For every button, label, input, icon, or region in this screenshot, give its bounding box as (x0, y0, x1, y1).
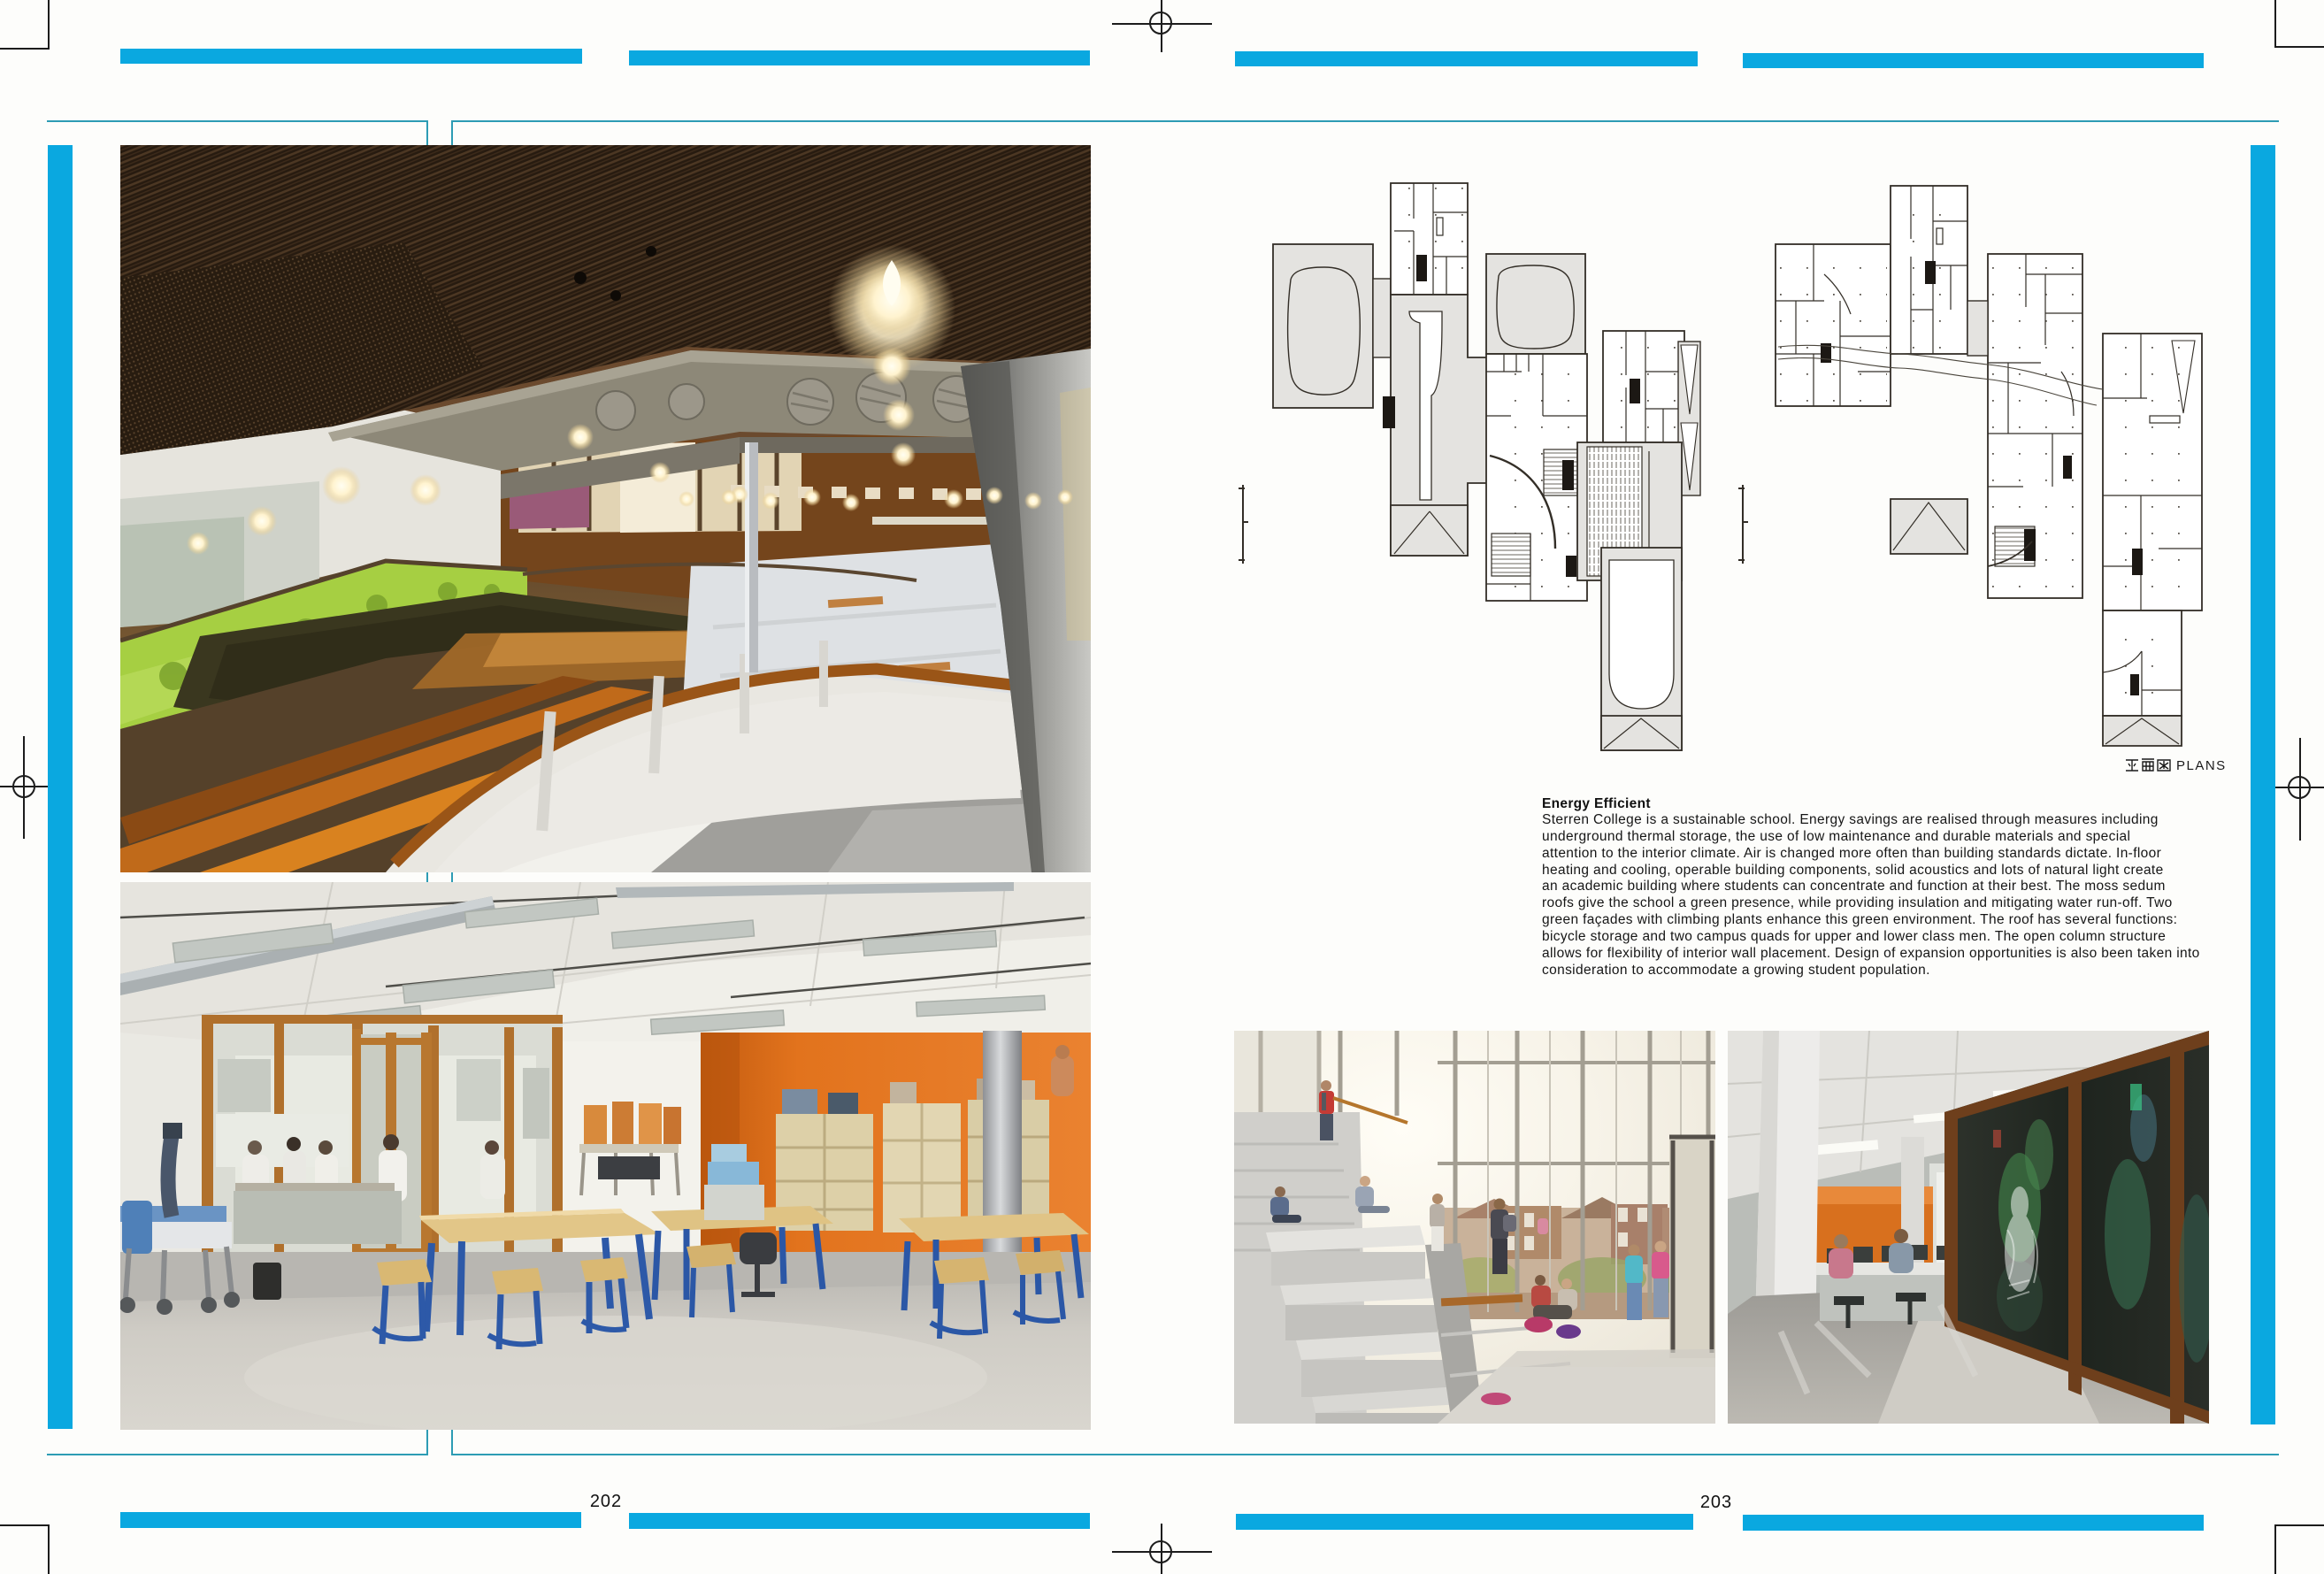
svg-text:PLANS: PLANS (2176, 758, 2227, 773)
